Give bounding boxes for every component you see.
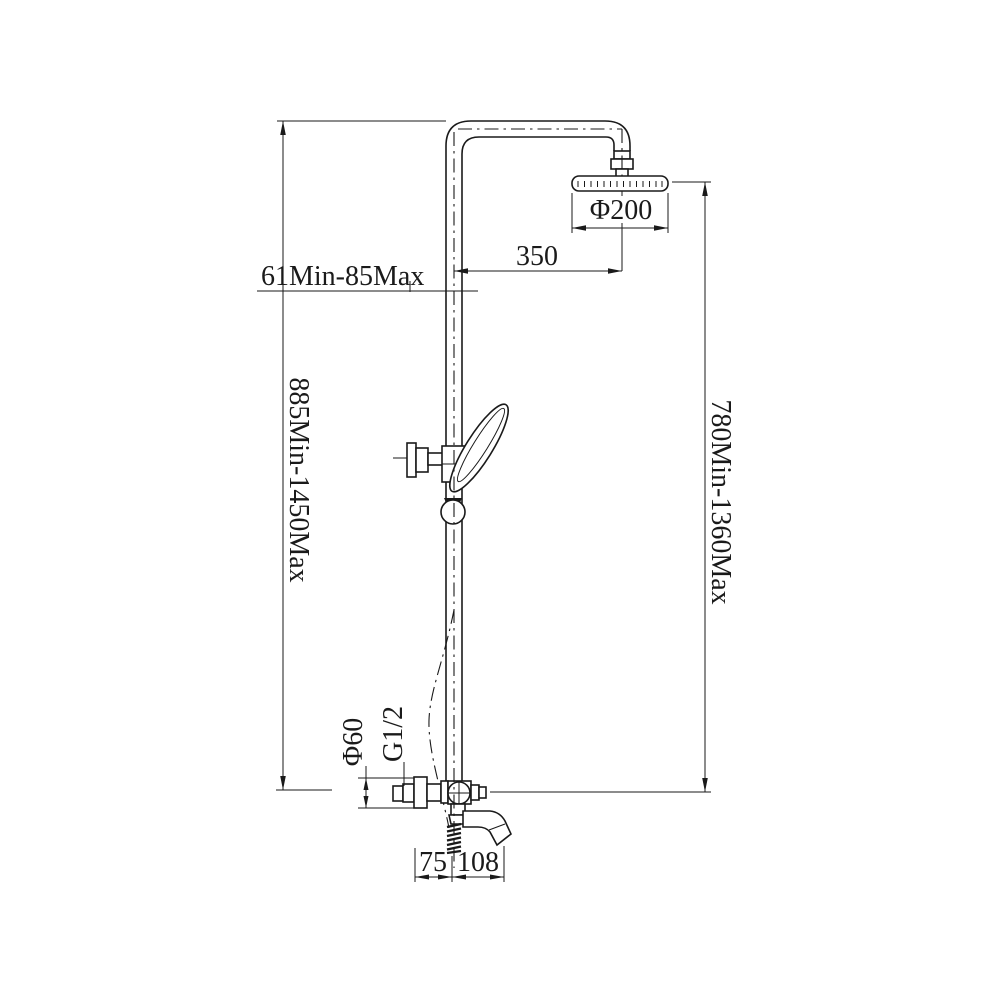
valve-handle	[393, 777, 448, 808]
head-to-valve-label: 780Min-1360Max	[705, 399, 736, 604]
tub-spout	[463, 811, 511, 845]
thread-size-label: G1/2	[378, 706, 409, 762]
dim-head-diameter: Φ200	[572, 193, 668, 233]
dim-spout: 75 108	[415, 846, 504, 882]
spout-left-label: 75	[419, 847, 447, 878]
dim-head-to-valve: 780Min-1360Max	[490, 182, 736, 792]
total-height-label: 885Min-1450Max	[283, 377, 314, 582]
mixer-valve	[393, 777, 511, 853]
dim-horizontal-offset: 350	[454, 241, 622, 274]
valve-diameter-label: Φ60	[338, 718, 369, 766]
center-lines	[454, 129, 622, 868]
head-diameter-label: Φ200	[590, 195, 652, 226]
shower-head	[572, 176, 668, 191]
technical-drawing-page: Φ200 350 61Min-85Max 885Min-1450Max 780M…	[0, 0, 1000, 1000]
horizontal-offset-label: 350	[516, 241, 558, 272]
dim-top-offset: 61Min-85Max	[257, 261, 478, 292]
top-offset-label: 61Min-85Max	[261, 261, 424, 292]
shower-system-drawing: Φ200 350 61Min-85Max 885Min-1450Max 780M…	[0, 0, 1000, 1000]
spout-right-label: 108	[457, 847, 499, 878]
label-thread-size: G1/2	[378, 706, 409, 786]
